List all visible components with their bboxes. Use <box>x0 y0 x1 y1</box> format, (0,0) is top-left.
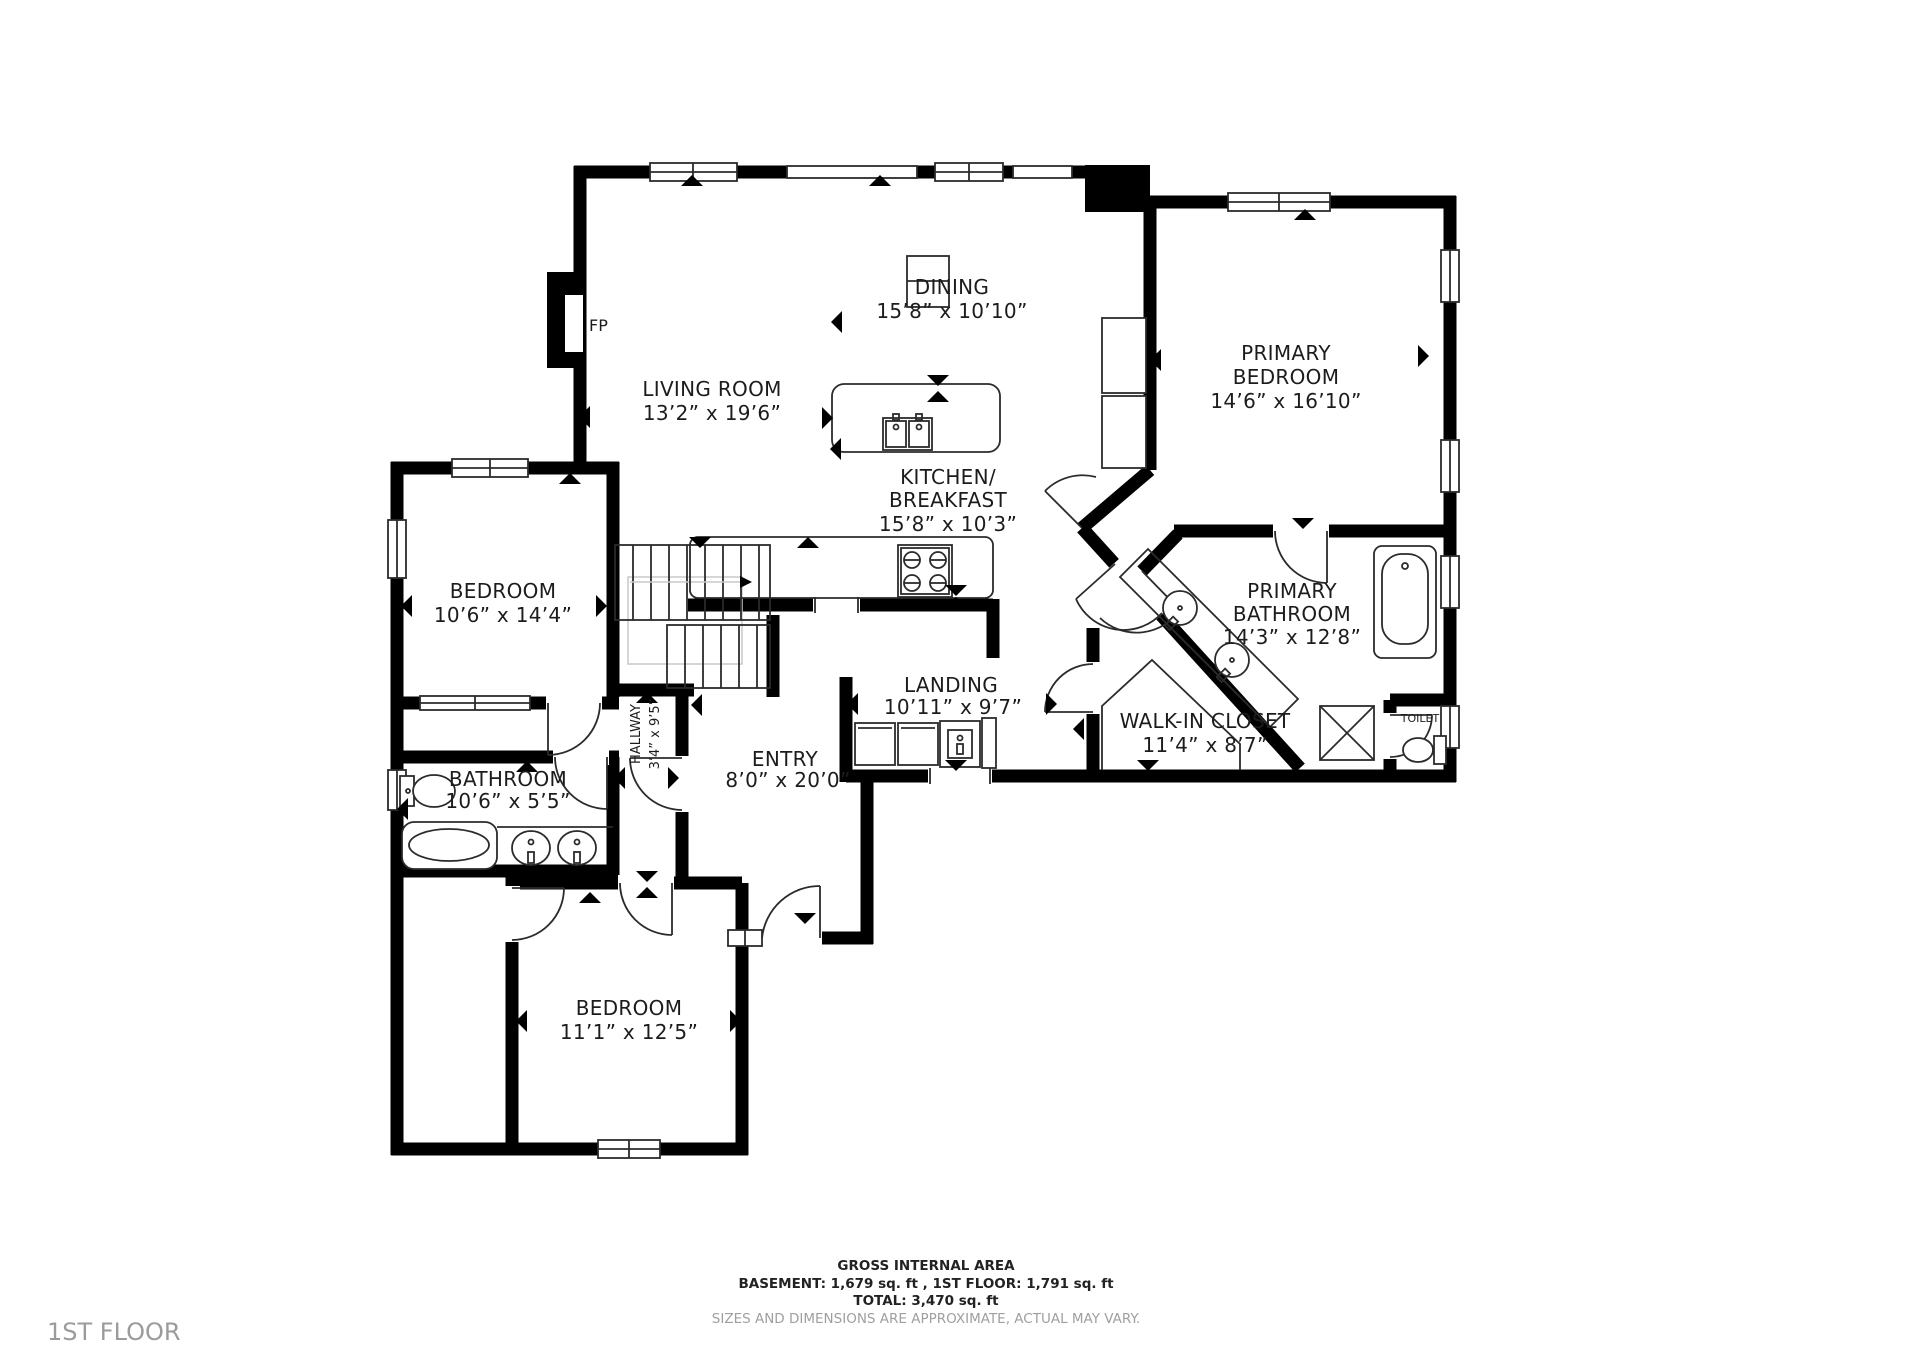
room-label-hallway: HALLWAY <box>629 704 644 764</box>
room-dims-kitchen: 15’8” x 10’3” <box>879 512 1017 536</box>
room-dims-bedroom-bottom: 11’1” x 12’5” <box>560 1020 698 1044</box>
wardrobe-x-box <box>1320 706 1374 760</box>
room-label-bathroom: BATHROOM <box>449 767 567 791</box>
room-label-toilet: TOILET <box>1400 712 1440 725</box>
stove-icon <box>898 545 952 597</box>
floor-plan-canvas: LIVING ROOM 13’2” x 19’6” DINING 15’8” x… <box>0 0 1920 1358</box>
vanity-sinks <box>497 827 613 865</box>
room-label-primary-bathroom: PRIMARY <box>1247 579 1337 603</box>
room-dims-dining: 15’8” x 10’10” <box>876 299 1027 323</box>
kitchen-counter <box>690 537 993 598</box>
corner-block <box>1085 165 1150 212</box>
bathtub-icon <box>402 822 497 869</box>
room-label-walk-in-closet: WALK-IN CLOSET <box>1120 709 1291 733</box>
room-dims-entry: 8’0” x 20’0” <box>725 768 850 792</box>
primary-bathtub-icon <box>1374 546 1436 658</box>
room-label-landing: LANDING <box>904 673 998 697</box>
room-label-bedroom-left: BEDROOM <box>450 579 557 603</box>
room-label-kitchen: KITCHEN/ <box>900 465 996 489</box>
floor-label: 1ST FLOOR <box>47 1318 181 1346</box>
toilet-room-fixture <box>1403 736 1446 764</box>
room-label-primary-bedroom-2: BEDROOM <box>1233 365 1340 389</box>
kitchen-wall-cabinets <box>1102 318 1146 468</box>
room-label-dining: DINING <box>915 275 989 299</box>
dryer-icon <box>898 723 938 765</box>
room-dims-landing: 10’11” x 9’7” <box>884 695 1022 719</box>
footer: GROSS INTERNAL AREA BASEMENT: 1,679 sq. … <box>712 1258 1140 1327</box>
fireplace-label: FP <box>589 316 608 335</box>
room-label-kitchen-2: BREAKFAST <box>889 488 1007 512</box>
washer-icon <box>855 723 895 765</box>
footer-areas: BASEMENT: 1,679 sq. ft , 1ST FLOOR: 1,79… <box>738 1276 1114 1292</box>
room-dims-primary-bathroom: 14’3” x 12’8” <box>1223 625 1361 649</box>
footer-gross-internal-area: GROSS INTERNAL AREA <box>837 1258 1015 1274</box>
kitchen-island <box>832 384 1000 452</box>
fireplace-icon <box>547 272 583 368</box>
room-dims-primary-bedroom: 14’6” x 16’10” <box>1210 389 1361 413</box>
staircase <box>615 545 770 688</box>
footer-total: TOTAL: 3,470 sq. ft <box>853 1293 999 1309</box>
room-label-living: LIVING ROOM <box>642 377 781 401</box>
room-dims-bedroom-left: 10’6” x 14’4” <box>434 603 572 627</box>
room-dims-living: 13’2” x 19’6” <box>643 401 781 425</box>
landing-cabinet <box>982 718 996 768</box>
room-label-primary-bedroom: PRIMARY <box>1241 341 1331 365</box>
room-label-bedroom-bottom: BEDROOM <box>576 996 683 1020</box>
room-dims-walk-in-closet: 11’4” x 8’7” <box>1142 733 1267 757</box>
room-dims-hallway: 3’4” x 9’5” <box>648 699 663 770</box>
room-label-primary-bathroom-2: BATHROOM <box>1233 602 1351 626</box>
room-dims-bathroom: 10’6” x 5’5” <box>445 789 570 813</box>
stair-direction-arrow <box>740 576 752 588</box>
footer-disclaimer: SIZES AND DIMENSIONS ARE APPROXIMATE, AC… <box>712 1311 1140 1327</box>
closet-sliding-door <box>420 696 530 710</box>
